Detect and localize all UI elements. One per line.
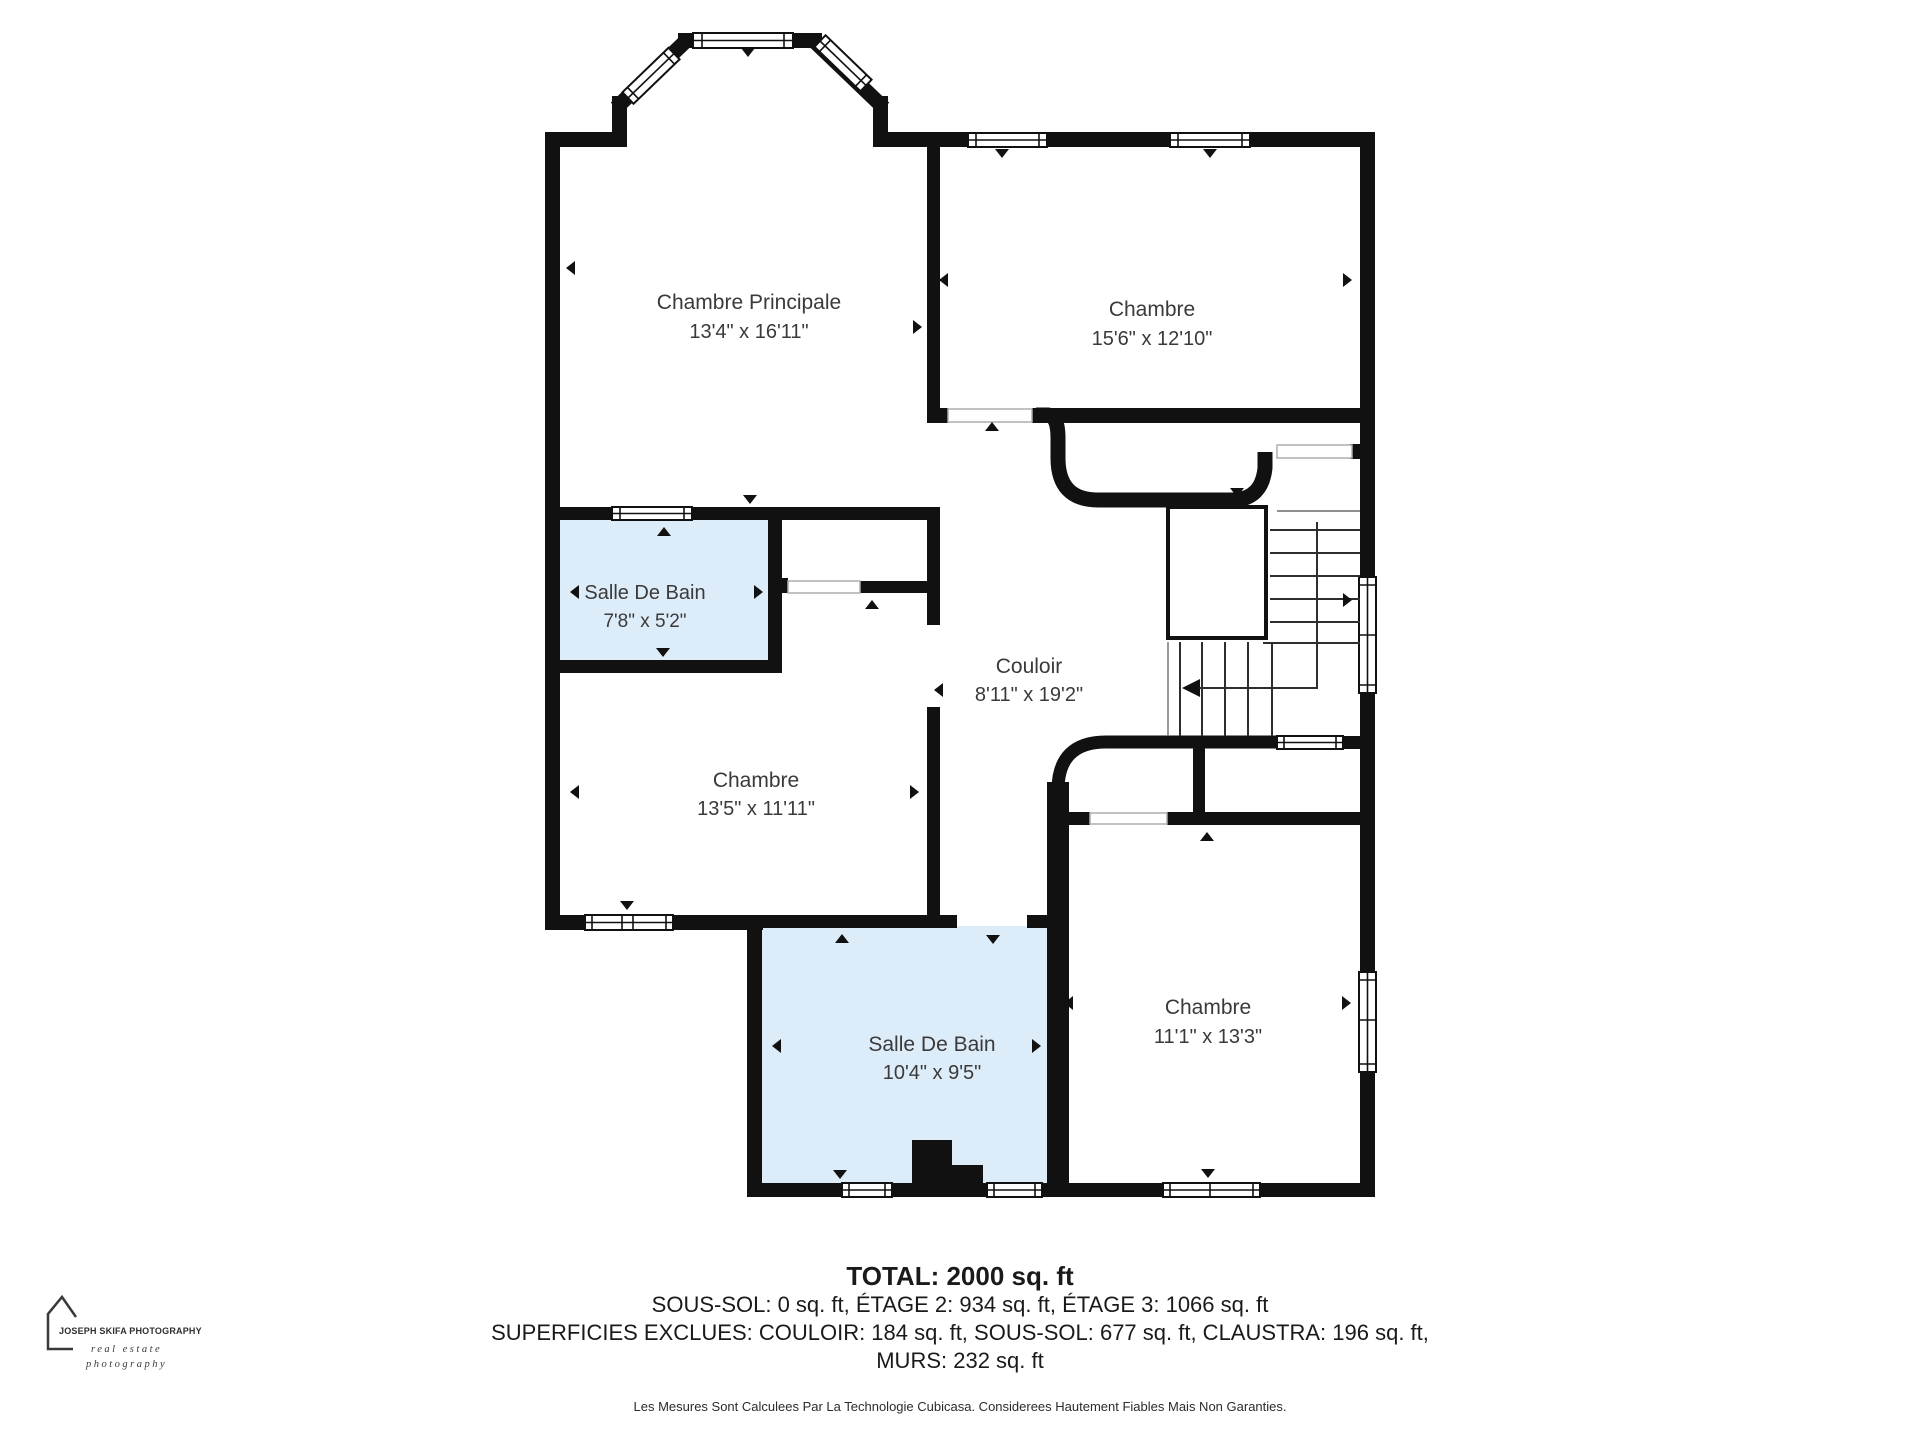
logo-subtitle-2: photography: [85, 1359, 167, 1370]
floor-areas: SOUS-SOL: 0 sq. ft, ÉTAGE 2: 934 sq. ft,…: [0, 1291, 1920, 1319]
label-chambre-principale: Chambre Principale: [657, 291, 841, 314]
window-top-2: [1170, 133, 1250, 147]
door-closet-top: [788, 581, 860, 593]
logo-title: JOSEPH SKIFA PHOTOGRAPHY: [59, 1326, 202, 1336]
stairwell-void: [1168, 507, 1266, 638]
door-chamber-top-right: [948, 409, 1032, 422]
measurement-disclaimer: Les Mesures Sont Calculees Par La Techno…: [0, 1399, 1920, 1414]
window-bathroom-top: [612, 507, 692, 520]
bay-window-left: [622, 48, 679, 104]
window-chamber-mid-left: [585, 915, 673, 930]
logo-subtitle-1: real estate: [91, 1344, 162, 1355]
excluded-areas: SUPERFICIES EXCLUES: COULOIR: 184 sq. ft…: [0, 1319, 1920, 1347]
dims-chambre-mid-left: 13'5" x 11'11": [697, 798, 815, 820]
window-closet-right: [1277, 736, 1343, 749]
house-icon: [48, 1297, 76, 1349]
window-bath-bottom-2: [987, 1183, 1042, 1197]
label-chambre-top-right: Chambre: [1109, 298, 1195, 321]
window-chamber-bottom: [1163, 1183, 1260, 1197]
bay-window-right: [814, 35, 871, 91]
walls-area: MURS: 232 sq. ft: [0, 1347, 1920, 1375]
label-salle-de-bain-bottom: Salle De Bain: [868, 1033, 995, 1056]
label-chambre-bottom-right: Chambre: [1165, 996, 1251, 1019]
photographer-logo: JOSEPH SKIFA PHOTOGRAPHY real estate pho…: [45, 1294, 245, 1389]
window-top-1: [968, 133, 1047, 147]
dims-salle-de-bain-top: 7'8" x 5'2": [603, 611, 686, 632]
bay-window-center: [693, 33, 793, 48]
window-right-chamber: [1359, 972, 1376, 1072]
dims-chambre-principale: 13'4" x 16'11": [689, 321, 808, 343]
window-bath-bottom-1: [842, 1183, 892, 1197]
dims-chambre-bottom-right: 11'1" x 13'3": [1154, 1026, 1262, 1048]
floor-plan-svg: Chambre Principale 13'4" x 16'11" Chambr…: [0, 0, 1920, 1440]
dims-salle-de-bain-bottom: 10'4" x 9'5": [883, 1062, 982, 1084]
label-chambre-mid-left: Chambre: [713, 769, 799, 792]
door-closet-bottom: [1090, 813, 1167, 824]
dims-couloir: 8'11" x 19'2": [975, 684, 1083, 706]
label-couloir: Couloir: [996, 655, 1063, 678]
stair-top-riser: [1277, 445, 1352, 458]
staircase: [1168, 507, 1360, 736]
dims-chambre-top-right: 15'6" x 12'10": [1092, 328, 1213, 350]
window-right-stair: [1359, 577, 1376, 693]
area-summary: TOTAL: 2000 sq. ft SOUS-SOL: 0 sq. ft, É…: [0, 1261, 1920, 1414]
total-area: TOTAL: 2000 sq. ft: [0, 1261, 1920, 1291]
stair-direction-arrow: [1182, 679, 1200, 697]
floor-plan: Chambre Principale 13'4" x 16'11" Chambr…: [0, 0, 1920, 1440]
label-salle-de-bain-top: Salle De Bain: [584, 582, 705, 604]
